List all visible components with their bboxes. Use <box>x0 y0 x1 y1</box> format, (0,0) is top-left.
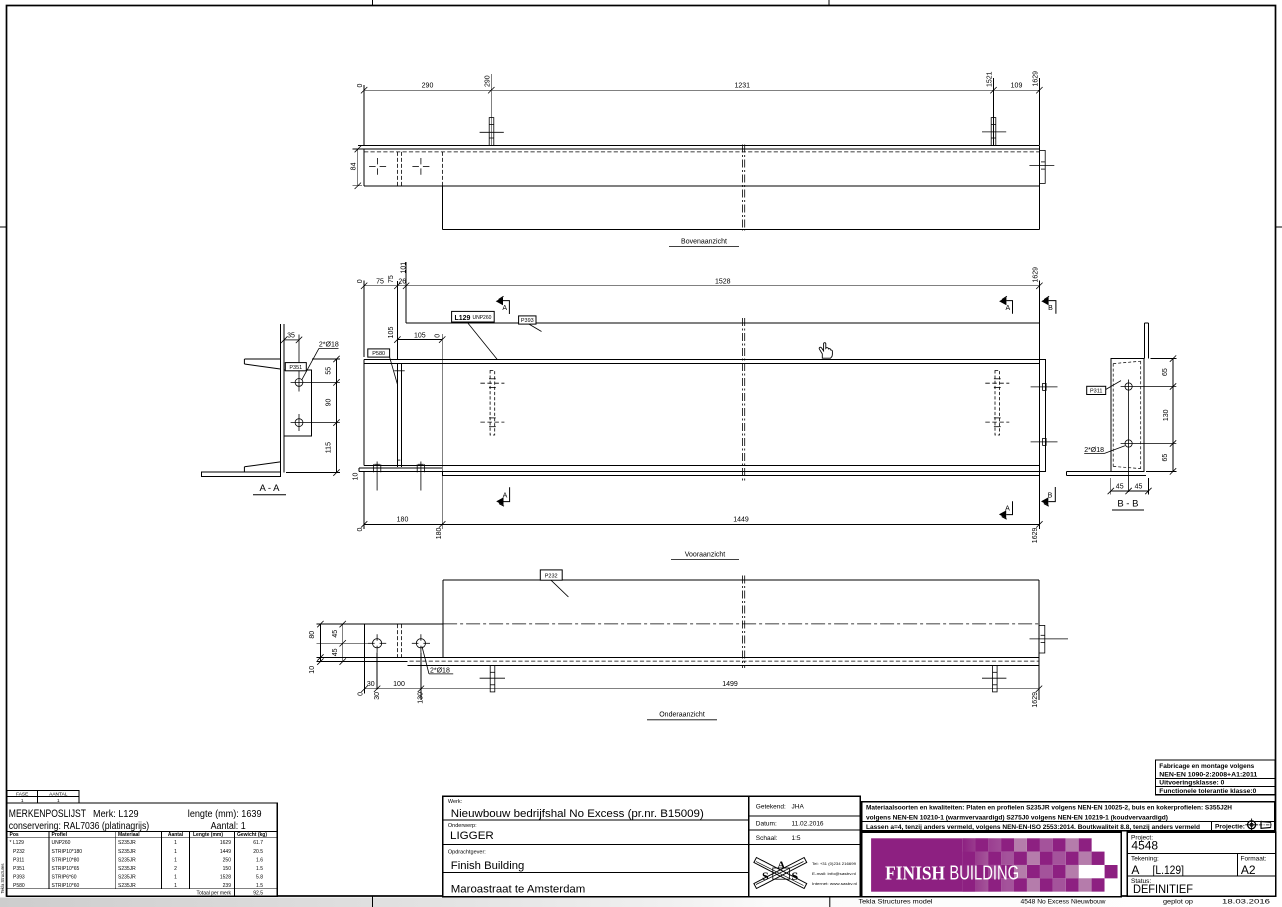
svg-text:Functionele tolerantie klasse:: Functionele tolerantie klasse:0 <box>1159 788 1257 795</box>
svg-text:10: 10 <box>352 473 359 481</box>
svg-text:61.7: 61.7 <box>253 840 263 846</box>
svg-text:S235JR: S235JR <box>118 874 136 880</box>
svg-text:1528: 1528 <box>220 874 231 880</box>
svg-text:Tekening:: Tekening: <box>1131 856 1159 863</box>
svg-text:100: 100 <box>393 681 405 688</box>
svg-text:115: 115 <box>325 442 332 453</box>
svg-text:Finish Building: Finish Building <box>451 860 525 872</box>
svg-text:A: A <box>503 493 508 500</box>
svg-text:Opdrachtgever:: Opdrachtgever: <box>448 849 486 855</box>
svg-text:STRIP10*65: STRIP10*65 <box>52 866 80 872</box>
svg-text:Nieuwbouw bedrijfshal No Exces: Nieuwbouw bedrijfshal No Excess (pr.nr. … <box>451 808 704 820</box>
svg-text:1629: 1629 <box>1033 267 1040 283</box>
svg-text:Onderwerp:: Onderwerp: <box>448 823 477 829</box>
svg-text:Getekend:: Getekend: <box>756 803 786 810</box>
svg-text:P393: P393 <box>13 874 25 880</box>
svg-text:Tekla Structures: Tekla Structures <box>0 863 5 893</box>
svg-text:2: 2 <box>174 866 177 872</box>
svg-text:Maroastraat te Amsterdam: Maroastraat te Amsterdam <box>451 884 586 896</box>
svg-text:1: 1 <box>174 874 177 880</box>
svg-text:BUILDING: BUILDING <box>949 863 1019 885</box>
svg-text:P580: P580 <box>372 351 385 357</box>
svg-text:101: 101 <box>401 262 408 274</box>
svg-text:Vooraanzicht: Vooraanzicht <box>685 552 726 559</box>
svg-text:A2: A2 <box>1241 863 1256 877</box>
svg-text:5.8: 5.8 <box>256 874 263 880</box>
svg-text:P580: P580 <box>13 883 25 889</box>
svg-text:A: A <box>1005 305 1010 312</box>
svg-text:Datum:: Datum: <box>756 821 777 828</box>
svg-text:Schaal:: Schaal: <box>756 835 778 842</box>
svg-text:1:5: 1:5 <box>792 835 801 842</box>
svg-text:STRIP10*80: STRIP10*80 <box>52 857 80 863</box>
svg-text:[L.129]: [L.129] <box>1153 863 1185 877</box>
svg-text:STRIP6*60: STRIP6*60 <box>52 874 77 880</box>
svg-text:Projectie:: Projectie: <box>1215 823 1245 830</box>
svg-text:180: 180 <box>436 528 443 540</box>
svg-text:109: 109 <box>1011 83 1023 90</box>
svg-text:P311: P311 <box>13 857 25 863</box>
svg-text:1629: 1629 <box>1033 71 1040 87</box>
svg-text:Profiel: Profiel <box>52 832 68 838</box>
svg-text:1449: 1449 <box>220 849 231 855</box>
svg-text:2*Ø18: 2*Ø18 <box>1084 447 1104 454</box>
svg-text:Materiaal: Materiaal <box>118 832 140 838</box>
svg-text:UNP260: UNP260 <box>473 315 492 321</box>
svg-text:A: A <box>1005 506 1010 513</box>
svg-text:Uitvoeringsklasse: 0: Uitvoeringsklasse: 0 <box>1159 780 1225 787</box>
svg-text:0: 0 <box>357 528 364 532</box>
svg-text:1.6: 1.6 <box>256 857 263 863</box>
svg-text:239: 239 <box>223 883 232 889</box>
svg-text:105: 105 <box>414 332 426 339</box>
svg-text:290: 290 <box>422 83 434 90</box>
svg-text:Internet: www.sasbv.nl: Internet: www.sasbv.nl <box>812 882 857 886</box>
svg-text:JHA: JHA <box>792 803 805 810</box>
svg-text:* L129: * L129 <box>10 840 25 846</box>
svg-text:130: 130 <box>418 692 425 704</box>
svg-text:FASE: FASE <box>16 792 28 798</box>
svg-text:1: 1 <box>174 840 177 846</box>
svg-text:S235JR: S235JR <box>118 840 136 846</box>
svg-text:LIGGER: LIGGER <box>450 830 494 842</box>
svg-text:0: 0 <box>357 84 364 88</box>
svg-text:Onderaanzicht: Onderaanzicht <box>659 712 705 719</box>
svg-text:4548 No Excess Nieuwbouw: 4548 No Excess Nieuwbouw <box>1021 899 1106 906</box>
svg-text:75: 75 <box>376 278 384 285</box>
svg-text:1528: 1528 <box>715 278 731 285</box>
svg-text:Lassen a=4, tenzij anders verm: Lassen a=4, tenzij anders vermeld, volge… <box>866 824 1200 831</box>
svg-text:STRIP10*60: STRIP10*60 <box>52 883 80 889</box>
svg-text:45: 45 <box>1135 484 1143 491</box>
svg-text:1499: 1499 <box>722 681 738 688</box>
svg-text:75: 75 <box>388 275 395 283</box>
svg-text:Materiaalsoorten en kwaliteite: Materiaalsoorten en kwaliteiten: Platen … <box>866 805 1232 812</box>
svg-text:S235JR: S235JR <box>118 857 136 863</box>
svg-text:2*Ø18: 2*Ø18 <box>319 342 339 349</box>
svg-text:P393: P393 <box>521 318 534 324</box>
svg-text:A: A <box>777 860 785 872</box>
svg-text:45: 45 <box>332 630 339 638</box>
svg-text:1: 1 <box>174 857 177 863</box>
svg-text:S: S <box>791 869 798 883</box>
svg-text:lengte (mm): 1639: lengte (mm): 1639 <box>188 809 262 820</box>
svg-text:S235JR: S235JR <box>118 849 136 855</box>
svg-text:A - A: A - A <box>259 483 280 494</box>
svg-text:1629: 1629 <box>1032 527 1039 543</box>
svg-text:Gewicht (kg): Gewicht (kg) <box>237 832 267 838</box>
svg-text:Fabricage en montage volgens: Fabricage en montage volgens <box>1159 763 1254 770</box>
svg-text:UNP260: UNP260 <box>52 840 71 846</box>
svg-text:1521: 1521 <box>987 71 994 87</box>
svg-text:150: 150 <box>223 866 232 872</box>
svg-text:1.5: 1.5 <box>256 866 263 872</box>
svg-text:250: 250 <box>223 857 232 863</box>
svg-text:10: 10 <box>309 666 316 674</box>
svg-text:1: 1 <box>174 883 177 889</box>
svg-text:Merk: L129: Merk: L129 <box>93 809 139 820</box>
svg-text:B: B <box>1048 493 1053 500</box>
svg-text:geplot op: geplot op <box>1163 899 1194 906</box>
svg-text:P351: P351 <box>289 365 302 371</box>
svg-text:65: 65 <box>1162 368 1169 376</box>
svg-text:L129: L129 <box>455 315 471 322</box>
svg-text:90: 90 <box>325 399 332 407</box>
svg-text:P232: P232 <box>545 574 558 580</box>
svg-text:84: 84 <box>351 162 358 170</box>
svg-text:92.5: 92.5 <box>253 891 263 897</box>
svg-text:AANTAL: AANTAL <box>49 792 68 798</box>
svg-text:A: A <box>502 305 507 312</box>
svg-text:Formaat:: Formaat: <box>1241 856 1267 863</box>
svg-text:35: 35 <box>287 332 295 339</box>
svg-text:20.5: 20.5 <box>253 849 263 855</box>
svg-text:0: 0 <box>434 334 441 338</box>
svg-text:1231: 1231 <box>735 83 751 90</box>
svg-text:E-mail: info@sasbv.nl: E-mail: info@sasbv.nl <box>812 872 856 876</box>
svg-text:DEFINITIEF: DEFINITIEF <box>1133 882 1193 896</box>
svg-text:130: 130 <box>1163 409 1170 421</box>
svg-text:Werk:: Werk: <box>448 799 463 805</box>
svg-text:volgens NEN-EN 10210-1 (warmve: volgens NEN-EN 10210-1 (warmvervaardigd)… <box>866 814 1168 821</box>
svg-text:P311: P311 <box>1090 389 1102 395</box>
svg-text:Lengte (mm): Lengte (mm) <box>193 832 223 838</box>
svg-text:Bovenaanzicht: Bovenaanzicht <box>681 239 727 246</box>
svg-text:S235JR: S235JR <box>118 883 136 889</box>
svg-text:Tel: +31 (0)234 216699: Tel: +31 (0)234 216699 <box>812 862 856 866</box>
svg-text:1449: 1449 <box>733 517 749 524</box>
svg-text:FINISH: FINISH <box>885 863 945 885</box>
svg-text:45: 45 <box>1116 484 1124 491</box>
svg-text:1629: 1629 <box>1032 692 1039 708</box>
svg-text:STRIP10*180: STRIP10*180 <box>52 849 83 855</box>
svg-text:290: 290 <box>485 75 492 87</box>
svg-text:45: 45 <box>332 648 339 656</box>
svg-text:55: 55 <box>325 367 332 375</box>
svg-text:105: 105 <box>388 327 395 339</box>
svg-text:NEN-EN 1090-2:2008+A1:2011: NEN-EN 1090-2:2008+A1:2011 <box>1159 771 1258 778</box>
svg-text:Tekla Structures model: Tekla Structures model <box>859 899 933 906</box>
svg-text:P351: P351 <box>13 866 25 872</box>
svg-text:0: 0 <box>357 692 364 696</box>
svg-text:Pos: Pos <box>10 832 19 838</box>
svg-text:11.02.2016: 11.02.2016 <box>792 821 824 828</box>
svg-text:1: 1 <box>174 849 177 855</box>
svg-text:4548: 4548 <box>1131 839 1158 853</box>
svg-text:Totaal per merk: Totaal per merk <box>197 891 232 897</box>
svg-text:B: B <box>1048 305 1053 312</box>
svg-text:2*Ø18: 2*Ø18 <box>430 667 450 674</box>
svg-text:S235JR: S235JR <box>118 866 136 872</box>
svg-text:Aantal: Aantal <box>168 832 184 838</box>
svg-text:0: 0 <box>357 279 364 283</box>
svg-text:30: 30 <box>374 692 381 700</box>
svg-text:P232: P232 <box>13 849 25 855</box>
svg-text:1.5: 1.5 <box>256 883 263 889</box>
svg-text:MERKENPOSLIJST: MERKENPOSLIJST <box>9 808 86 820</box>
svg-text:30: 30 <box>367 681 375 688</box>
svg-text:Aantal: 1: Aantal: 1 <box>211 821 246 832</box>
svg-text:80: 80 <box>309 631 316 639</box>
svg-text:conservering: RAL7036 (platina: conservering: RAL7036 (platinagrijs) <box>9 821 149 832</box>
svg-text:S: S <box>762 869 769 883</box>
svg-text:B - B: B - B <box>1117 499 1138 510</box>
svg-text:18.03.2016: 18.03.2016 <box>1222 899 1271 906</box>
svg-text:180: 180 <box>397 517 409 524</box>
svg-text:26: 26 <box>398 278 406 285</box>
svg-text:1629: 1629 <box>220 840 231 846</box>
svg-text:65: 65 <box>1162 454 1169 462</box>
svg-text:A: A <box>1131 863 1139 877</box>
